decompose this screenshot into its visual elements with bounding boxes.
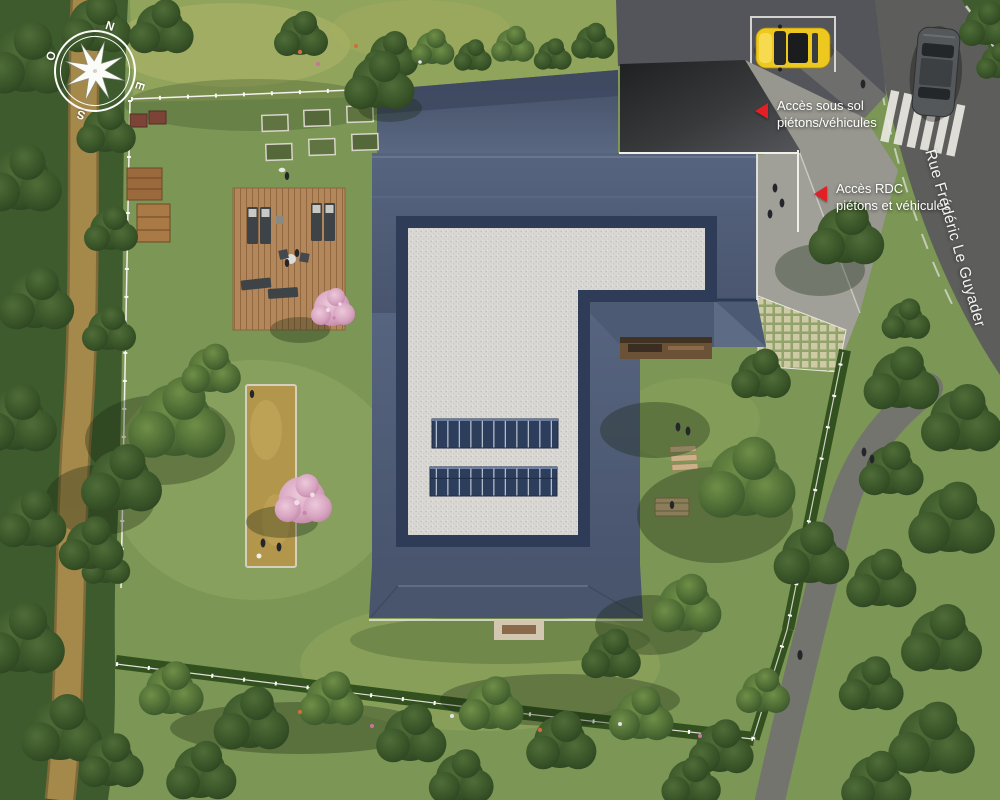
hip-roof-south [369,565,643,618]
site-plan-canvas [0,0,1000,800]
planter-box [149,111,166,124]
petanque-court [246,385,296,567]
aerial-site-plan: Accès sous sol piétons/véhicules Accès R… [0,0,1000,800]
recessed-terrace [620,337,712,359]
yellow-car [754,25,834,72]
planter-box [130,114,147,127]
entrance-porch [494,620,544,640]
